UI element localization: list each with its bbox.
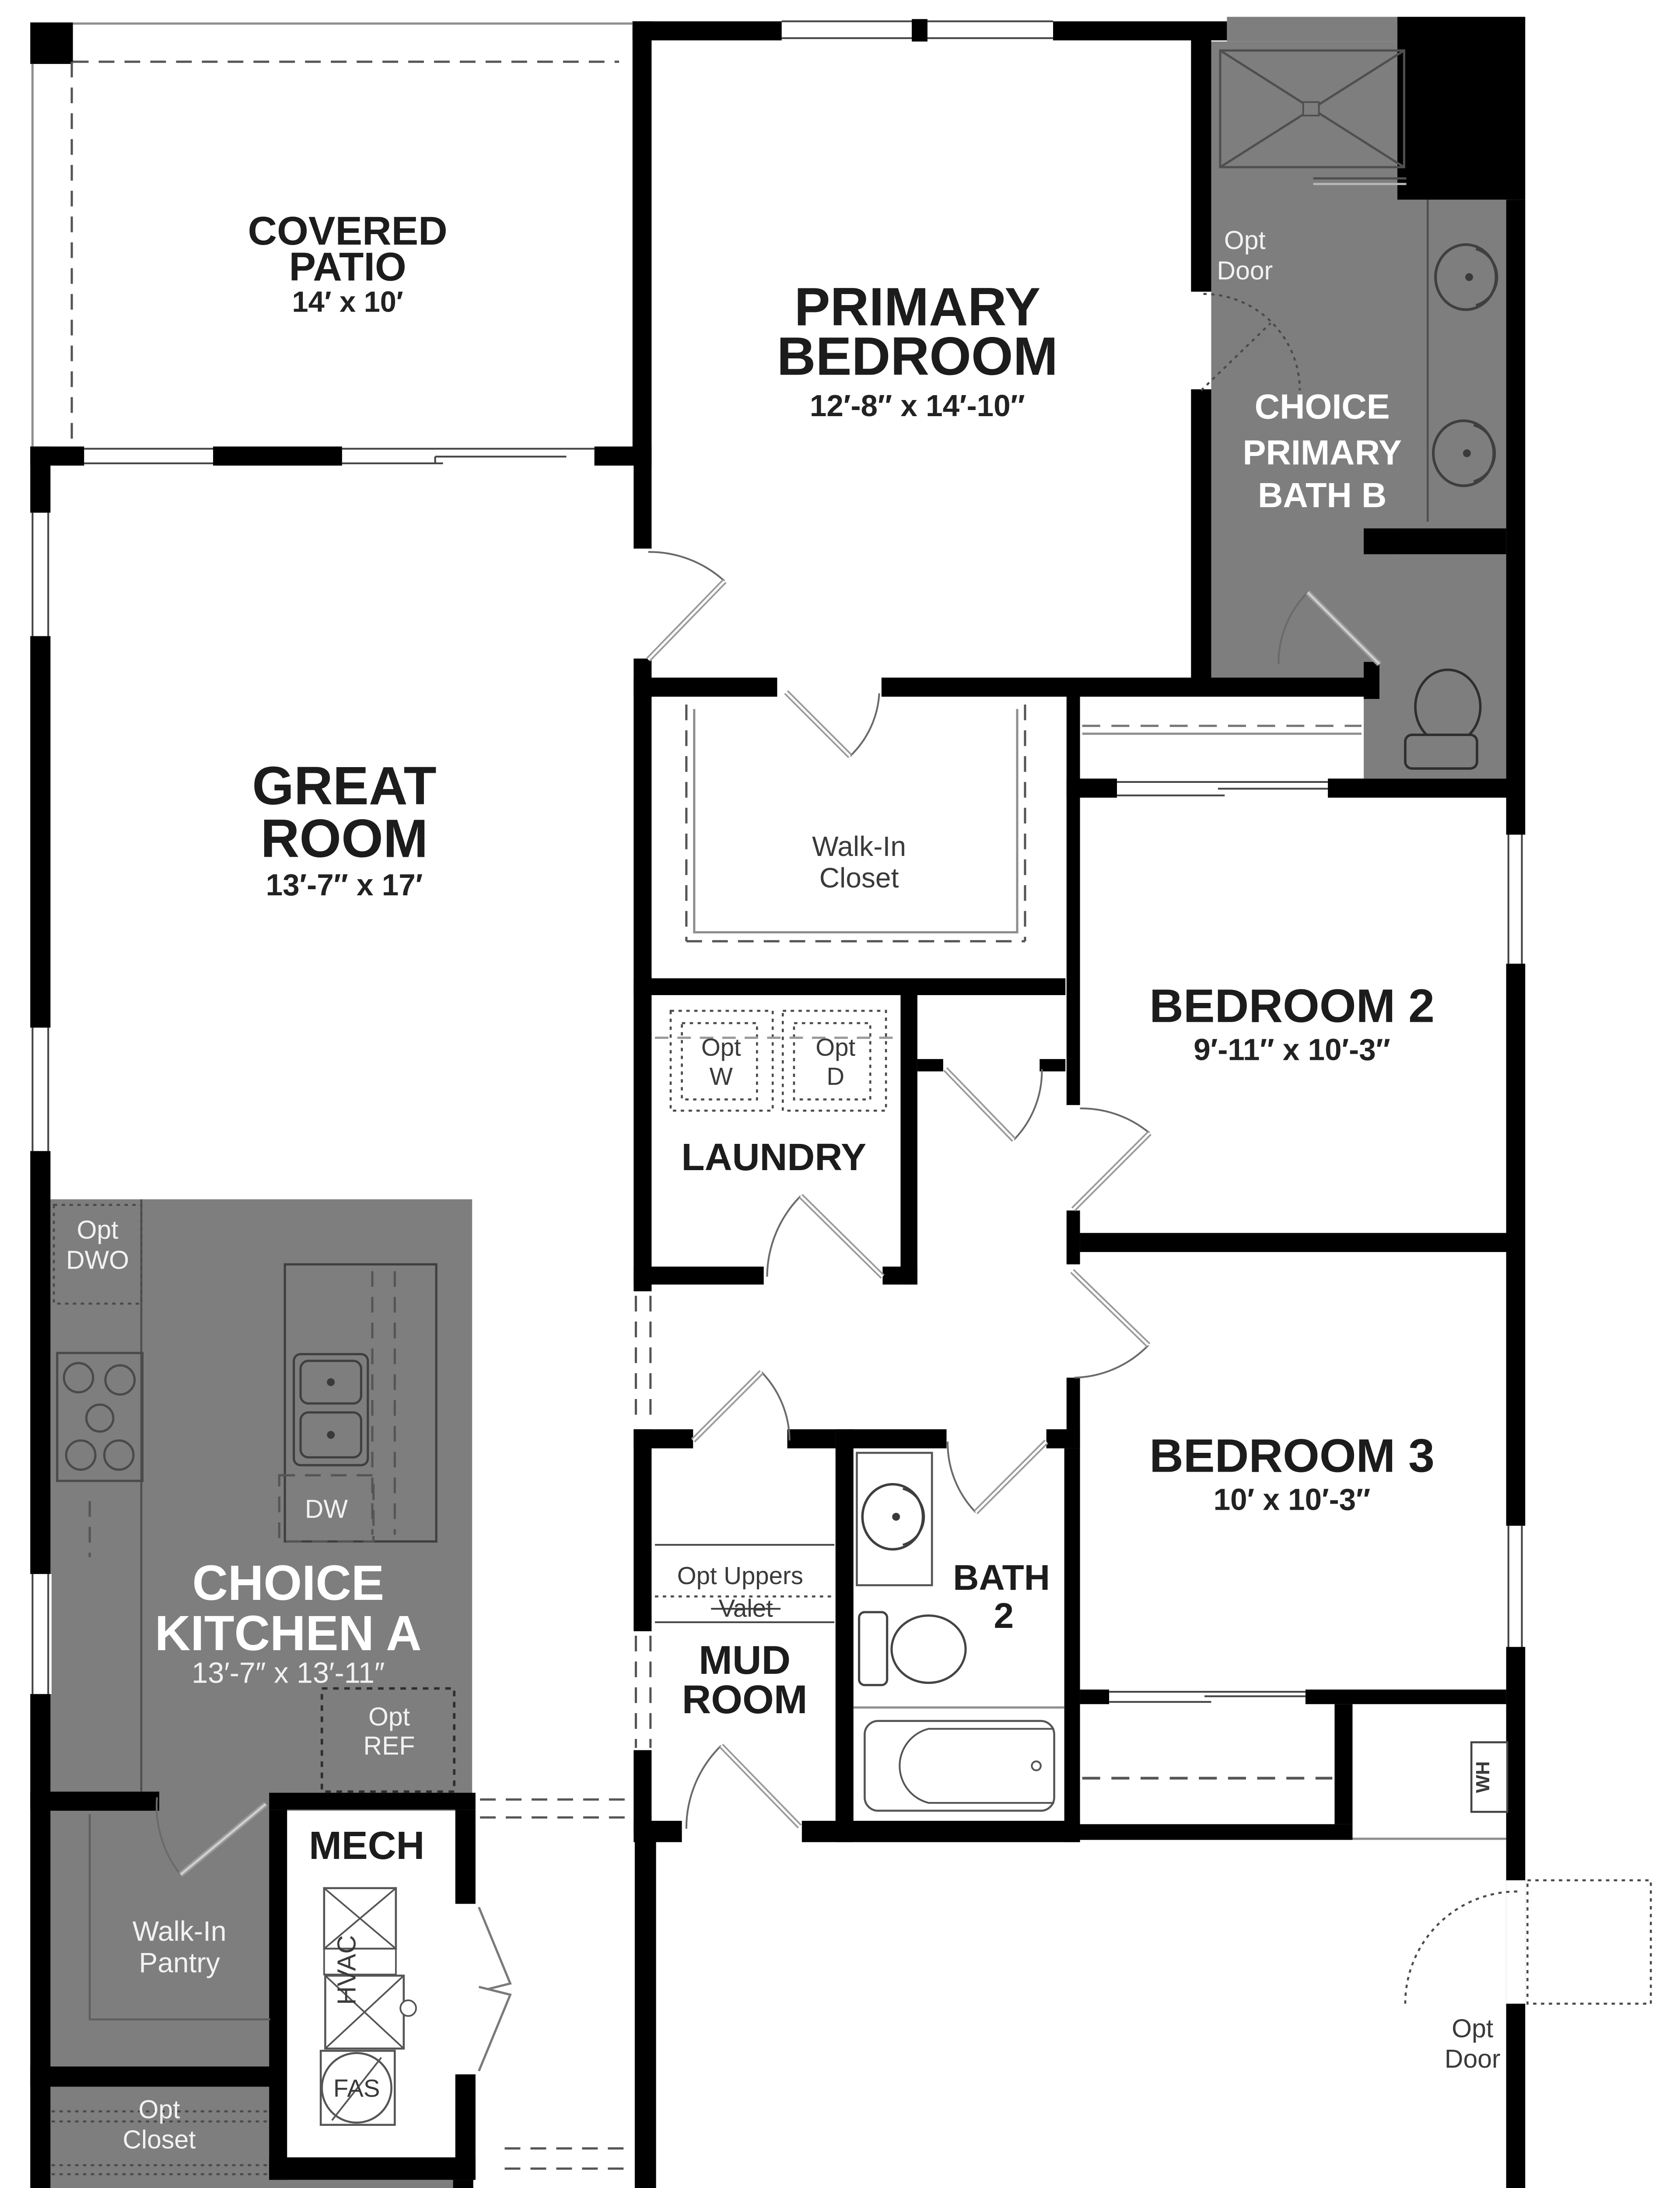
svg-text:Opt Uppers: Opt Uppers [677,1562,803,1589]
svg-text:Door: Door [1217,256,1273,285]
svg-text:Opt: Opt [701,1033,741,1061]
svg-text:PATIO: PATIO [289,244,406,289]
svg-text:Pantry: Pantry [139,1947,220,1978]
svg-text:9′-11″ x 10′-3″: 9′-11″ x 10′-3″ [1193,1033,1390,1067]
svg-text:ROOM: ROOM [682,1676,808,1722]
svg-text:HVAC: HVAC [333,1935,361,2005]
svg-text:FAS: FAS [333,2075,380,2102]
svg-text:14′ x 10′: 14′ x 10′ [292,286,403,319]
svg-text:13′-7″ x 13′-11″: 13′-7″ x 13′-11″ [192,1657,385,1690]
svg-text:D: D [826,1062,844,1090]
svg-text:Opt: Opt [1452,2015,1493,2043]
svg-text:WH: WH [1473,1761,1494,1793]
svg-text:Opt: Opt [1224,226,1266,255]
svg-text:CHOICE: CHOICE [1255,387,1390,426]
svg-text:BATH: BATH [953,1558,1050,1598]
svg-text:Opt: Opt [368,1703,410,1731]
svg-text:12′-8″ x 14′-10″: 12′-8″ x 14′-10″ [810,389,1025,423]
svg-text:MUD: MUD [699,1637,791,1683]
svg-text:Closet: Closet [122,2126,196,2154]
svg-text:Opt: Opt [77,1216,119,1244]
svg-text:13′-7″ x 17′: 13′-7″ x 17′ [266,868,423,902]
svg-text:DW: DW [305,1495,348,1524]
svg-text:BEDROOM 2: BEDROOM 2 [1149,980,1435,1032]
svg-text:Opt: Opt [138,2095,180,2124]
svg-text:BATH B: BATH B [1258,476,1386,515]
svg-text:BEDROOM: BEDROOM [777,326,1058,386]
svg-text:CHOICE: CHOICE [192,1555,384,1610]
svg-text:REF: REF [364,1732,415,1760]
svg-text:2: 2 [994,1596,1014,1636]
svg-text:ROOM: ROOM [261,809,428,869]
svg-text:BEDROOM 3: BEDROOM 3 [1149,1430,1435,1482]
svg-text:Closet: Closet [819,862,899,894]
svg-text:Opt: Opt [815,1033,855,1061]
svg-text:KITCHEN A: KITCHEN A [155,1606,422,1661]
svg-text:LAUNDRY: LAUNDRY [681,1136,866,1178]
svg-text:Walk-In: Walk-In [133,1915,227,1947]
svg-text:GREAT: GREAT [252,756,437,816]
svg-text:MECH: MECH [309,1824,424,1868]
svg-text:10′ x 10′-3″: 10′ x 10′-3″ [1214,1483,1371,1517]
svg-text:DWO: DWO [66,1246,129,1275]
svg-text:W: W [710,1062,733,1090]
svg-text:PRIMARY: PRIMARY [1243,433,1402,472]
svg-text:Door: Door [1445,2045,1501,2073]
svg-text:Walk-In: Walk-In [812,831,906,862]
